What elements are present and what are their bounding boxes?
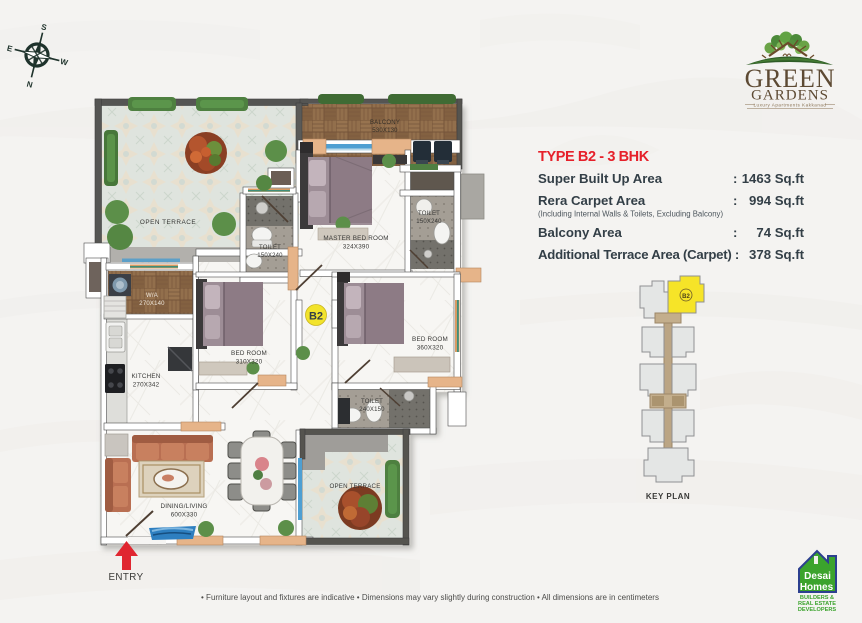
svg-text:TOILET: TOILET xyxy=(259,245,281,251)
svg-text:310X320: 310X320 xyxy=(236,359,263,366)
svg-text:270X342: 270X342 xyxy=(133,382,160,389)
svg-text:530X130: 530X130 xyxy=(372,128,398,134)
svg-text:270X140: 270X140 xyxy=(139,301,165,307)
svg-text:240X150: 240X150 xyxy=(359,407,385,413)
svg-text:Balcony Area: Balcony Area xyxy=(538,225,622,240)
svg-text:TOILET: TOILET xyxy=(361,399,383,405)
svg-text:ENTRY: ENTRY xyxy=(108,572,143,583)
svg-text:B2: B2 xyxy=(682,294,690,300)
svg-text::: : xyxy=(733,225,737,240)
svg-text:B2: B2 xyxy=(309,311,323,323)
svg-text:BED ROOM: BED ROOM xyxy=(412,336,448,343)
svg-text:KEY PLAN: KEY PLAN xyxy=(646,492,690,501)
svg-text:• Furniture layout and fixture: • Furniture layout and fixtures are indi… xyxy=(201,593,659,602)
svg-text::: : xyxy=(733,193,737,208)
svg-text:994 Sq.ft: 994 Sq.ft xyxy=(749,193,805,208)
svg-text:OPEN TERRACE: OPEN TERRACE xyxy=(329,483,380,490)
svg-text::: : xyxy=(733,171,737,186)
svg-text:1463 Sq.ft: 1463 Sq.ft xyxy=(742,171,805,186)
svg-text:DINING/LIVING: DINING/LIVING xyxy=(160,503,207,510)
svg-text:W/A: W/A xyxy=(146,293,158,299)
svg-text:600X330: 600X330 xyxy=(171,512,198,519)
svg-text:Luxury Apartments Kakkanad: Luxury Apartments Kakkanad xyxy=(753,103,826,108)
svg-text:OPEN TERRACE: OPEN TERRACE xyxy=(140,219,196,226)
svg-text:BED ROOM: BED ROOM xyxy=(231,350,267,357)
svg-text:360X320: 360X320 xyxy=(417,345,444,352)
svg-text:TYPE B2 - 3 BHK: TYPE B2 - 3 BHK xyxy=(538,149,650,165)
svg-text:Additional Terrace Area (Carpe: Additional Terrace Area (Carpet) : xyxy=(538,247,739,262)
svg-text:Rera Carpet Area: Rera Carpet Area xyxy=(538,193,646,208)
svg-text:MASTER BED ROOM: MASTER BED ROOM xyxy=(323,235,388,242)
svg-text:Desai: Desai xyxy=(804,571,831,582)
svg-text:DEVELOPERS: DEVELOPERS xyxy=(798,607,837,613)
svg-text:BALCONY: BALCONY xyxy=(370,120,400,126)
svg-text:150X240: 150X240 xyxy=(416,219,442,225)
svg-text:Homes: Homes xyxy=(800,582,834,593)
svg-text:74 Sq.ft: 74 Sq.ft xyxy=(756,225,804,240)
svg-text:(Including Internal Walls & To: (Including Internal Walls & Toilets, Exc… xyxy=(538,210,723,219)
svg-text:GARDENS: GARDENS xyxy=(751,88,829,104)
svg-text:150X240: 150X240 xyxy=(257,253,283,259)
svg-text:KITCHEN: KITCHEN xyxy=(131,373,160,380)
svg-text:378 Sq.ft: 378 Sq.ft xyxy=(749,247,805,262)
svg-text:Super Built Up Area: Super Built Up Area xyxy=(538,171,663,186)
svg-text:324X390: 324X390 xyxy=(343,244,370,251)
svg-text:TOILET: TOILET xyxy=(418,211,440,217)
